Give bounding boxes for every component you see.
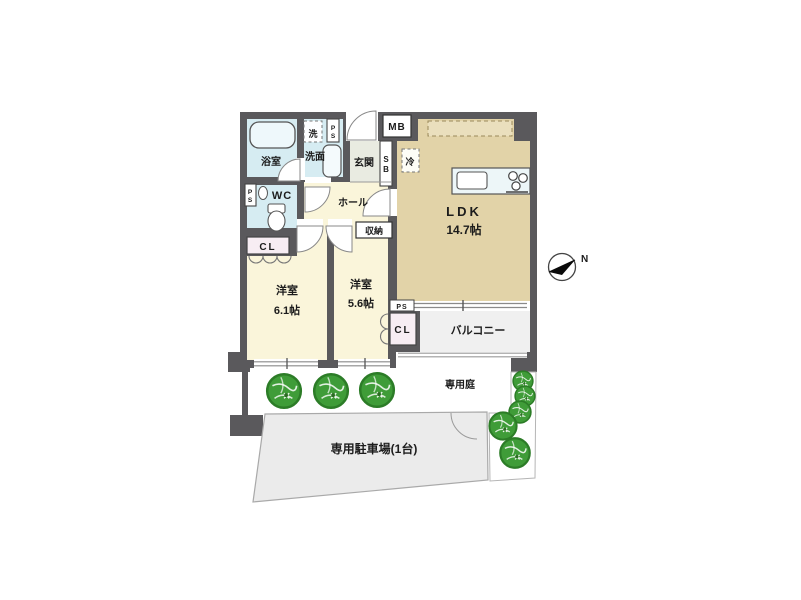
tree-icon	[314, 374, 348, 408]
tree-icon	[267, 374, 301, 408]
pipe-space-left-label: PS	[247, 189, 254, 205]
bedroom-61-label: 洋室	[276, 283, 298, 297]
entrance-label: 玄関	[354, 156, 374, 169]
bedroom-61-window	[254, 359, 318, 369]
parking-label: 専用駐車場(1台)	[331, 441, 418, 456]
kitchen-sink	[457, 172, 487, 189]
tree-icon	[500, 438, 529, 467]
refrigerator-label: 冷	[405, 156, 414, 167]
toilet-bowl	[268, 211, 285, 231]
wc-hand-sink	[259, 187, 268, 200]
tree-icon	[360, 373, 394, 407]
pipe-space-top-label: PS	[330, 125, 337, 141]
north-label: N	[581, 254, 588, 265]
bath-label: 浴室	[261, 155, 281, 168]
washroom-sink	[323, 145, 341, 177]
balcony-label: バルコニー	[451, 324, 506, 337]
bedroom-56-area: 5.6帖	[348, 296, 374, 310]
bedroom-56-label: 洋室	[350, 277, 372, 291]
floor-plan-page: N 浴室 洗 PS 洗面 玄関 SB MB 冷 WC PS ホール 収納 CL …	[0, 0, 801, 600]
washer-label: 洗	[308, 128, 317, 139]
outdoor	[253, 371, 536, 502]
closet-right-label: CL	[394, 325, 411, 336]
ldk-upper-cabinet	[428, 121, 512, 136]
ldk-area: 14.7帖	[446, 222, 481, 237]
storage-label: 収納	[365, 225, 383, 236]
ldk-label: LDK	[446, 204, 482, 219]
washroom-label: 洗面	[305, 150, 325, 163]
meter-box-label: MB	[388, 122, 406, 133]
tree-icon	[489, 412, 516, 439]
garden-label: 専用庭	[445, 378, 476, 391]
hall-label: ホール	[338, 197, 368, 209]
bathtub	[250, 122, 295, 148]
floor-plan-drawing: N 浴室 洗 PS 洗面 玄関 SB MB 冷 WC PS ホール 収納 CL …	[0, 0, 801, 600]
compass: N	[549, 254, 589, 281]
parking-area	[253, 412, 488, 502]
pipe-space-right-label: PS	[396, 304, 407, 311]
bedroom-61-area: 6.1帖	[274, 303, 300, 317]
wc-label: WC	[272, 190, 292, 202]
closet-left-label: CL	[259, 242, 276, 253]
bedroom-56-window	[338, 359, 390, 369]
shoe-box-label: SB	[382, 155, 391, 175]
